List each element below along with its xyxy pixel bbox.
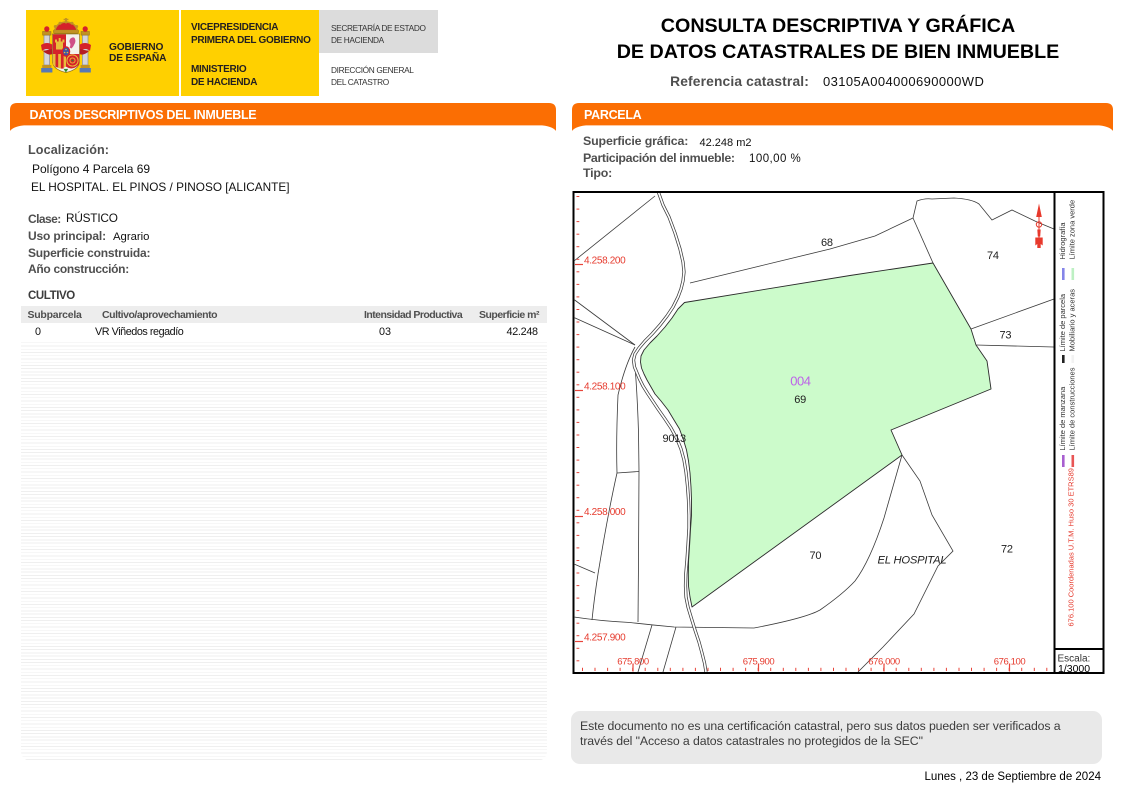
svg-text:69: 69 xyxy=(794,394,806,406)
svg-text:68: 68 xyxy=(821,237,833,249)
svg-text:675.800: 675.800 xyxy=(617,657,649,668)
svg-text:1/3000: 1/3000 xyxy=(1058,663,1090,675)
svg-text:676.100: 676.100 xyxy=(994,657,1026,668)
svg-text:4.258.000: 4.258.000 xyxy=(584,507,626,518)
svg-text:Hidrografía: Hidrografía xyxy=(1058,222,1067,260)
svg-text:4.257.900: 4.257.900 xyxy=(584,633,626,644)
svg-text:Límite de parcela: Límite de parcela xyxy=(1058,293,1067,351)
svg-text:74: 74 xyxy=(987,250,999,262)
svg-text:9013: 9013 xyxy=(663,433,686,445)
svg-text:73: 73 xyxy=(1000,330,1012,342)
svg-text:4.258.100: 4.258.100 xyxy=(584,382,626,393)
svg-text:676.100 Coordenadas U.T.M. Hus: 676.100 Coordenadas U.T.M. Huso 30 ETRS8… xyxy=(1067,468,1076,626)
svg-text:Mobiliario y aceras: Mobiliario y aceras xyxy=(1068,289,1077,352)
svg-text:EL HOSPITAL: EL HOSPITAL xyxy=(878,555,947,567)
svg-text:72: 72 xyxy=(1001,544,1013,556)
svg-text:676.000: 676.000 xyxy=(868,657,900,668)
svg-text:Límite de construcciones: Límite de construcciones xyxy=(1068,367,1077,450)
svg-text:4.258.200: 4.258.200 xyxy=(584,256,626,267)
svg-text:Límite de manzana: Límite de manzana xyxy=(1058,386,1067,451)
svg-text:Límite zona verde: Límite zona verde xyxy=(1068,200,1077,260)
svg-text:70: 70 xyxy=(810,550,822,562)
svg-text:004: 004 xyxy=(790,374,810,389)
svg-text:675.900: 675.900 xyxy=(743,657,775,668)
